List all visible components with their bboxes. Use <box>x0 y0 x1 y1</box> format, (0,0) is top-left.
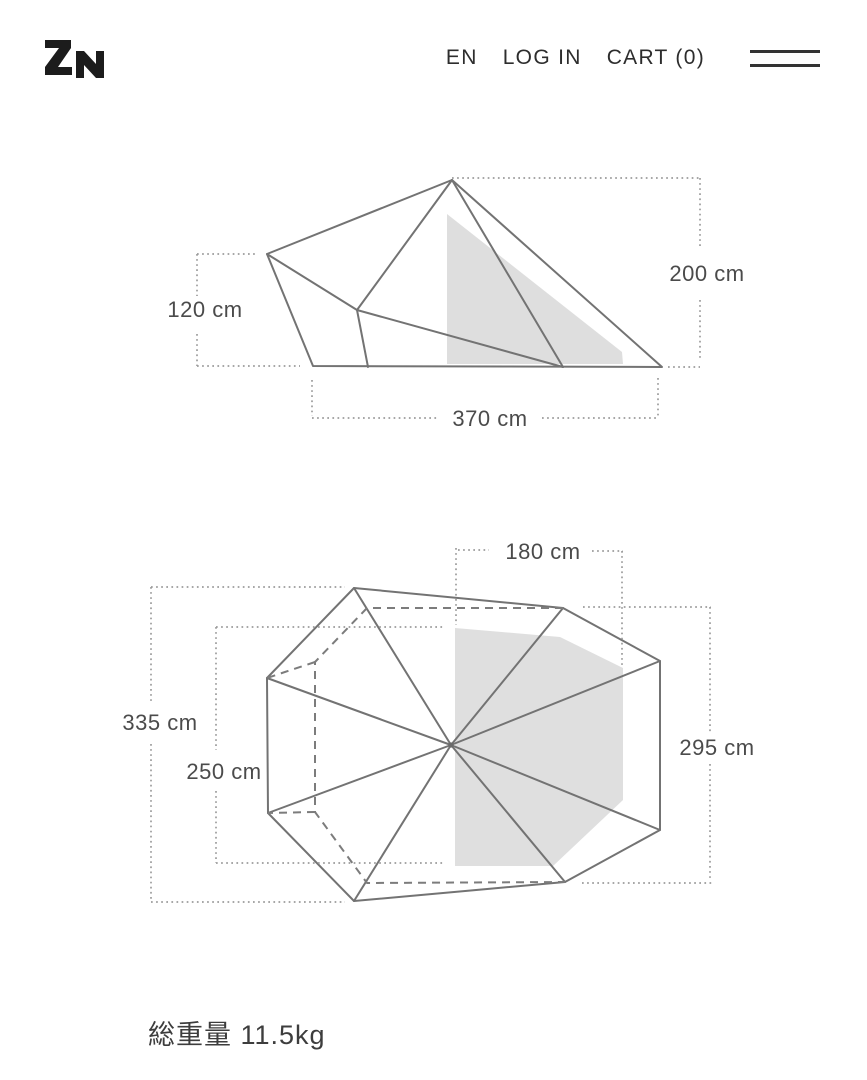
top-center-hub <box>448 742 453 747</box>
page: EN LOG IN CART (0) <box>0 0 867 1080</box>
top-tent-pole <box>268 745 451 813</box>
top-tent-pole <box>354 588 451 745</box>
side-tent-rib <box>267 254 357 310</box>
tent-top-view: 180 cm 335 cm 250 cm 295 cm <box>122 539 754 902</box>
side-height-left-label: 120 cm <box>167 297 242 322</box>
top-tent-pole <box>267 678 451 745</box>
top-inner-tent-dashed <box>268 812 315 813</box>
top-tent-pole <box>354 745 451 901</box>
side-height-right-label: 200 cm <box>669 261 744 286</box>
side-tent-rib <box>357 310 368 367</box>
side-width-label: 370 cm <box>452 406 527 431</box>
top-inner-room-shade <box>455 628 623 866</box>
top-width-inner-label: 250 cm <box>186 759 261 784</box>
tent-side-view: 200 cm 120 cm 370 cm <box>167 178 744 431</box>
dim-line-250cm <box>216 627 444 863</box>
top-depth-right-label: 295 cm <box>679 735 754 760</box>
total-weight-label: 総重量 11.5kg <box>148 1020 326 1050</box>
top-depth-outer-label: 335 cm <box>122 710 197 735</box>
tent-spec-diagram: 200 cm 120 cm 370 cm <box>0 0 867 1080</box>
top-width-top-label: 180 cm <box>505 539 580 564</box>
